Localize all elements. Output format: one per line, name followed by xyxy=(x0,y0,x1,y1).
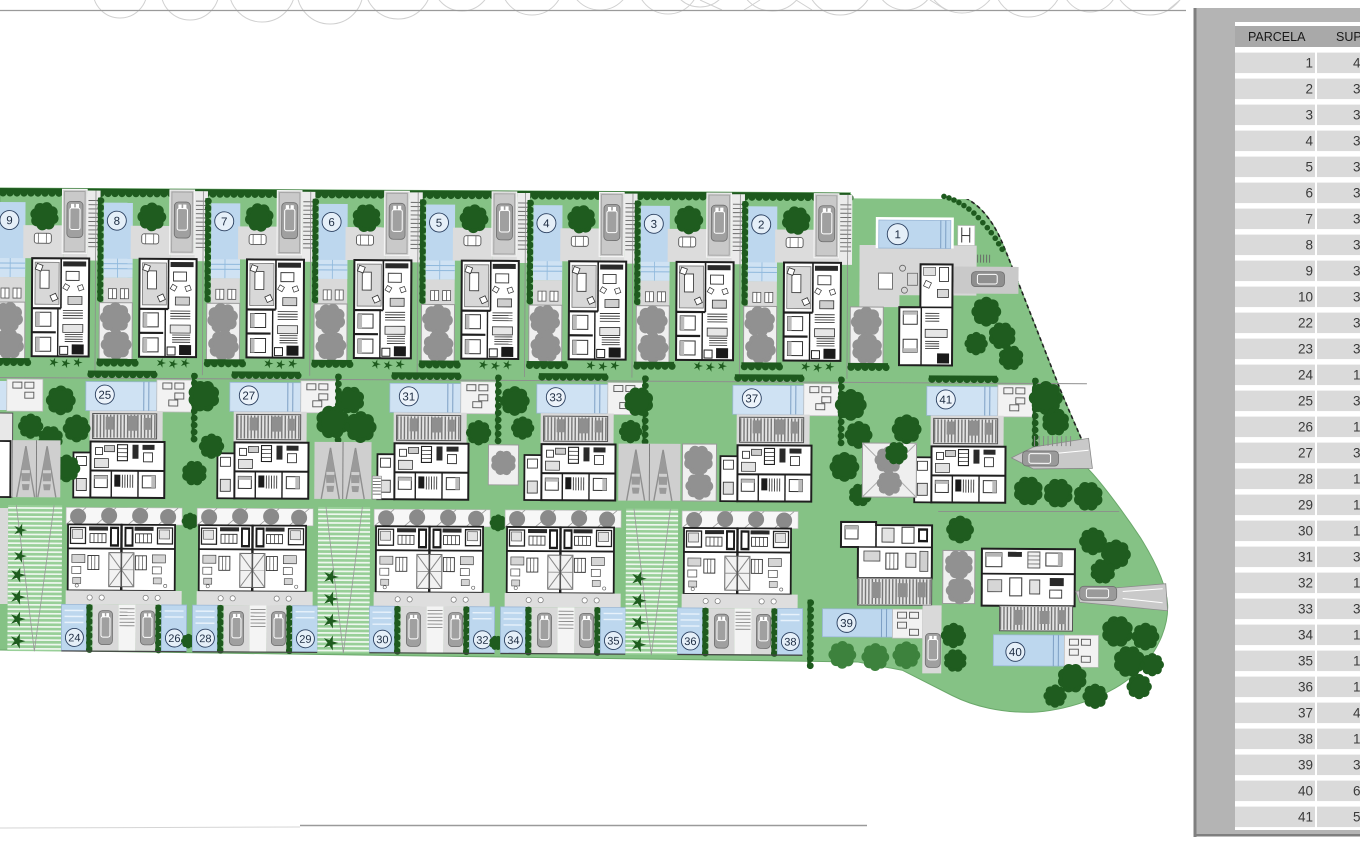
svg-text:40: 40 xyxy=(1298,784,1313,799)
svg-text:4: 4 xyxy=(1353,56,1360,71)
svg-text:1: 1 xyxy=(1353,472,1360,487)
svg-text:29: 29 xyxy=(299,634,311,646)
svg-text:7: 7 xyxy=(1305,212,1313,227)
svg-text:1: 1 xyxy=(1353,524,1360,539)
svg-text:36: 36 xyxy=(1298,680,1313,695)
svg-text:22: 22 xyxy=(1298,316,1313,331)
svg-text:SUPERFICIE: SUPERFICIE xyxy=(1336,30,1360,44)
svg-text:27: 27 xyxy=(1298,446,1313,461)
svg-text:1: 1 xyxy=(1353,420,1360,435)
svg-text:1: 1 xyxy=(1353,732,1360,747)
svg-text:39: 39 xyxy=(1298,758,1313,773)
svg-text:9: 9 xyxy=(6,215,12,227)
svg-text:41: 41 xyxy=(939,395,952,407)
svg-text:3: 3 xyxy=(1353,134,1360,149)
svg-text:3: 3 xyxy=(1353,550,1360,565)
svg-text:8: 8 xyxy=(114,216,120,228)
svg-text:3: 3 xyxy=(1353,264,1360,279)
svg-text:4: 4 xyxy=(1305,134,1313,149)
svg-text:33: 33 xyxy=(1298,602,1313,617)
svg-text:4: 4 xyxy=(1353,706,1360,721)
svg-text:3: 3 xyxy=(1353,82,1360,97)
svg-text:39: 39 xyxy=(840,618,853,630)
svg-text:38: 38 xyxy=(1298,732,1313,747)
svg-text:1: 1 xyxy=(895,229,901,241)
svg-text:34: 34 xyxy=(1298,628,1314,643)
svg-text:2: 2 xyxy=(758,219,764,231)
svg-text:30: 30 xyxy=(1298,524,1313,539)
svg-text:29: 29 xyxy=(1298,498,1313,513)
svg-text:PARCELA: PARCELA xyxy=(1248,30,1306,44)
svg-text:3: 3 xyxy=(1353,238,1360,253)
svg-text:25: 25 xyxy=(98,390,111,402)
svg-text:4: 4 xyxy=(543,218,550,230)
svg-text:2: 2 xyxy=(1305,82,1313,97)
svg-text:28: 28 xyxy=(199,633,211,645)
svg-text:3: 3 xyxy=(1353,186,1360,201)
svg-text:31: 31 xyxy=(1298,550,1313,565)
svg-text:1: 1 xyxy=(1353,628,1360,643)
svg-text:3: 3 xyxy=(1353,342,1360,357)
svg-text:41: 41 xyxy=(1298,810,1313,825)
svg-text:5: 5 xyxy=(1353,810,1360,825)
svg-text:1: 1 xyxy=(1353,368,1360,383)
svg-text:1: 1 xyxy=(1305,56,1313,71)
svg-text:27: 27 xyxy=(242,390,255,402)
svg-text:1: 1 xyxy=(1353,498,1360,513)
svg-text:33: 33 xyxy=(549,392,562,404)
svg-text:3: 3 xyxy=(1353,316,1360,331)
svg-text:9: 9 xyxy=(1305,264,1313,279)
svg-text:24: 24 xyxy=(68,632,80,644)
svg-text:26: 26 xyxy=(168,633,180,645)
svg-text:6: 6 xyxy=(328,217,334,229)
svg-text:3: 3 xyxy=(1353,212,1360,227)
svg-text:37: 37 xyxy=(1298,706,1313,721)
svg-text:26: 26 xyxy=(1298,420,1313,435)
svg-text:6: 6 xyxy=(1305,186,1313,201)
svg-text:3: 3 xyxy=(1353,758,1360,773)
svg-text:40: 40 xyxy=(1009,647,1022,659)
svg-text:34: 34 xyxy=(507,635,519,647)
svg-text:3: 3 xyxy=(1305,108,1313,123)
svg-text:24: 24 xyxy=(1298,368,1314,383)
svg-text:8: 8 xyxy=(1305,238,1313,253)
svg-text:38: 38 xyxy=(784,637,796,649)
svg-text:1: 1 xyxy=(1353,680,1360,695)
svg-text:3: 3 xyxy=(1353,290,1360,305)
svg-text:32: 32 xyxy=(476,635,488,647)
svg-text:3: 3 xyxy=(1353,394,1360,409)
svg-text:36: 36 xyxy=(684,636,696,648)
svg-text:35: 35 xyxy=(1298,654,1313,669)
svg-text:3: 3 xyxy=(1353,446,1360,461)
svg-text:32: 32 xyxy=(1298,576,1313,591)
svg-text:1: 1 xyxy=(1353,576,1360,591)
svg-text:7: 7 xyxy=(221,216,227,228)
svg-text:30: 30 xyxy=(376,634,388,646)
svg-text:5: 5 xyxy=(1305,160,1313,175)
svg-text:3: 3 xyxy=(651,219,657,231)
svg-text:3: 3 xyxy=(1353,602,1360,617)
svg-text:28: 28 xyxy=(1298,472,1313,487)
svg-text:10: 10 xyxy=(1298,290,1313,305)
svg-text:3: 3 xyxy=(1353,160,1360,175)
svg-text:35: 35 xyxy=(607,636,619,648)
svg-text:23: 23 xyxy=(1298,342,1313,357)
svg-text:1: 1 xyxy=(1353,654,1360,669)
svg-text:5: 5 xyxy=(436,218,442,230)
svg-text:3: 3 xyxy=(1353,108,1360,123)
svg-text:31: 31 xyxy=(402,391,415,403)
svg-text:6: 6 xyxy=(1353,784,1360,799)
svg-text:25: 25 xyxy=(1298,394,1313,409)
svg-text:37: 37 xyxy=(745,393,758,405)
